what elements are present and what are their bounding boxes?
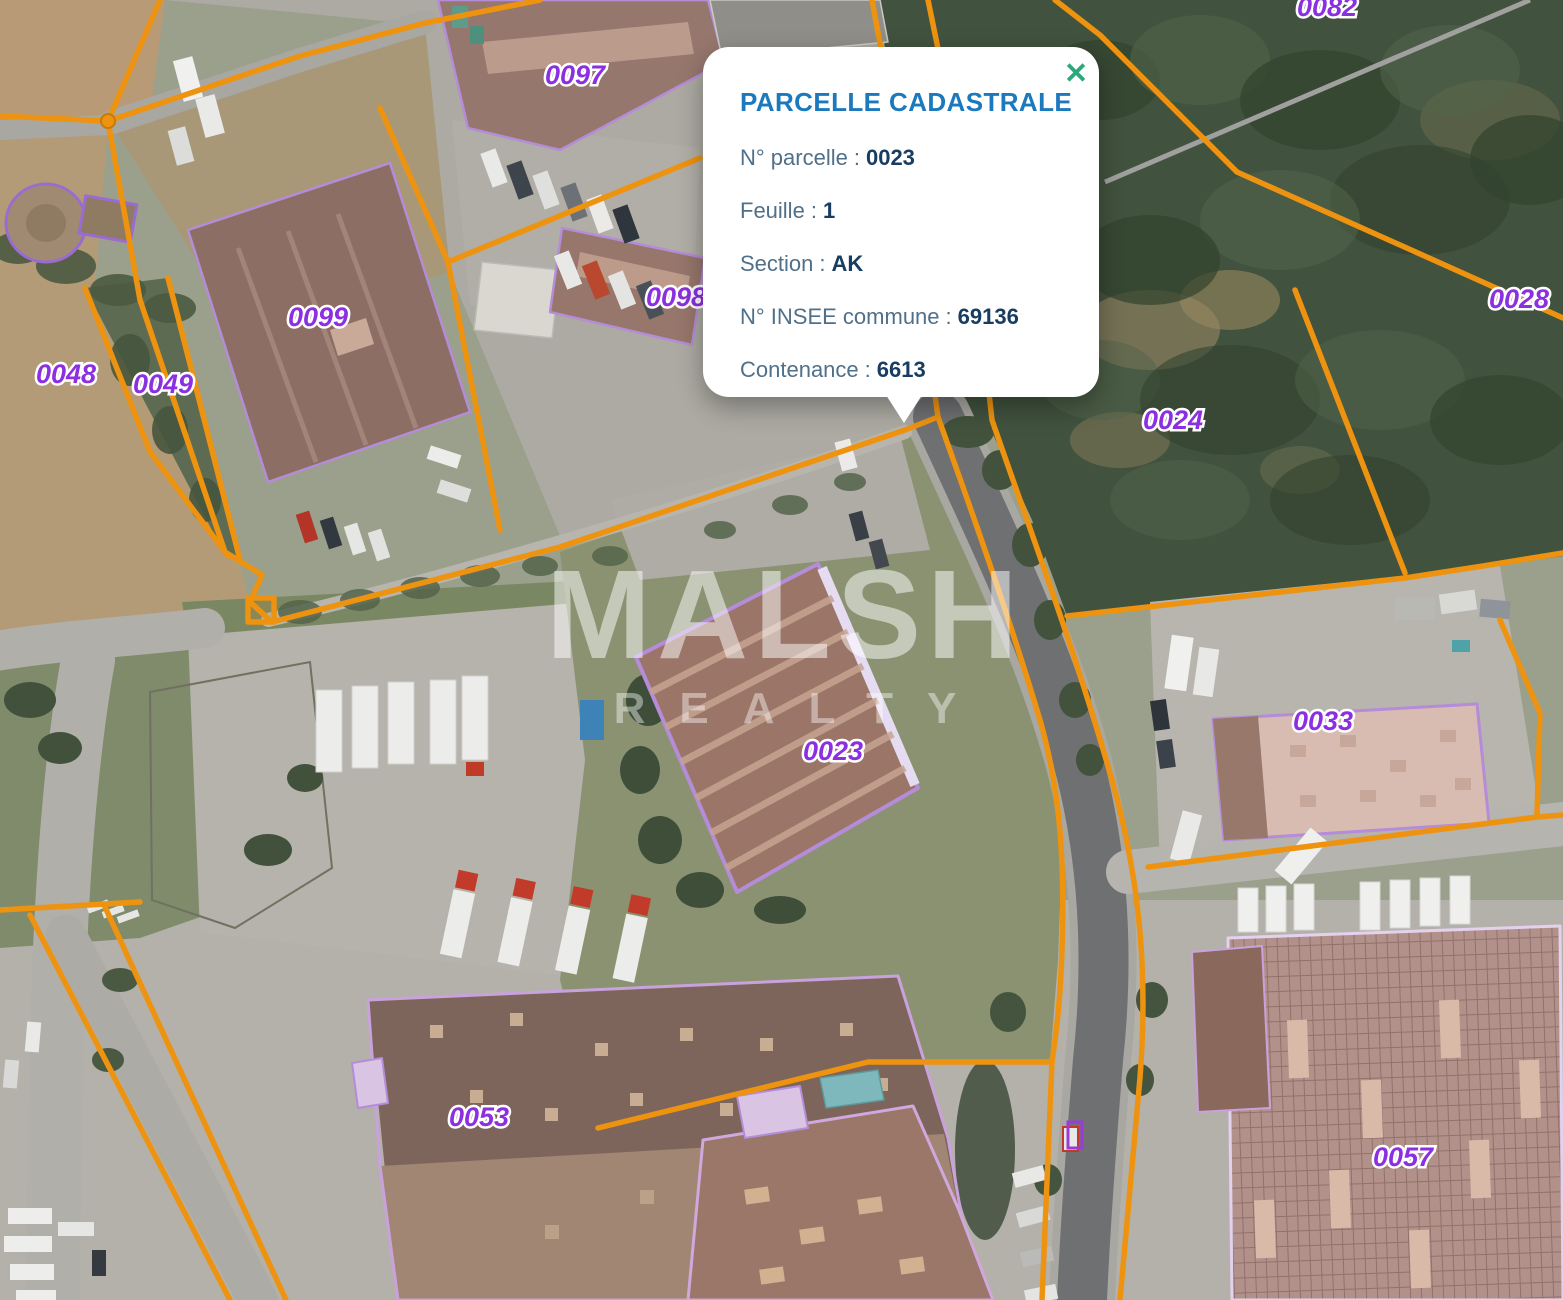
cadastral-map-view: 0082 0097 0098 0099 0048 0049 0028 0024 …: [0, 0, 1563, 1300]
field-separator: :: [854, 145, 860, 170]
parcel-label-0053[interactable]: 0053: [449, 1102, 509, 1132]
field-separator: :: [811, 198, 817, 223]
parcel-label-0097[interactable]: 0097: [545, 60, 607, 90]
parcel-label-0082[interactable]: 0082: [1297, 0, 1357, 22]
field-label: N° parcelle: [740, 145, 848, 170]
field-label: Section: [740, 251, 813, 276]
parcel-label-0048[interactable]: 0048: [36, 359, 96, 389]
field-label: Contenance: [740, 357, 859, 382]
parcel-info-popup: ✕ PARCELLE CADASTRALE N° parcelle:0023 F…: [703, 47, 1099, 397]
parcel-label-0024[interactable]: 0024: [1143, 405, 1203, 435]
popup-field-feuille: Feuille:1: [740, 198, 1099, 224]
parcel-label-0098[interactable]: 0098: [646, 282, 706, 312]
boundary-junction-node: [101, 114, 115, 128]
close-icon[interactable]: ✕: [1059, 57, 1093, 91]
field-label: N° INSEE commune: [740, 304, 940, 329]
parcel-label-0028[interactable]: 0028: [1489, 284, 1549, 314]
parcel-label-0057[interactable]: 0057: [1373, 1142, 1435, 1172]
popup-field-section: Section:AK: [740, 251, 1099, 277]
popup-title: PARCELLE CADASTRALE: [740, 87, 1099, 118]
popup-field-insee: N° INSEE commune:69136: [740, 304, 1099, 330]
field-value: 69136: [958, 304, 1019, 329]
field-label: Feuille: [740, 198, 805, 223]
popup-field-contenance: Contenance:6613: [740, 357, 1099, 383]
parcel-label-0099[interactable]: 0099: [288, 302, 348, 332]
field-separator: :: [819, 251, 825, 276]
parcel-label-0049[interactable]: 0049: [133, 369, 193, 399]
parcel-label-0033[interactable]: 0033: [1293, 706, 1353, 736]
field-separator: :: [865, 357, 871, 382]
field-separator: :: [946, 304, 952, 329]
field-value: 1: [823, 198, 835, 223]
field-value: 0023: [866, 145, 915, 170]
popup-field-parcelle: N° parcelle:0023: [740, 145, 1099, 171]
field-value: 6613: [877, 357, 926, 382]
field-value: AK: [832, 251, 864, 276]
building-small-white[interactable]: [474, 262, 560, 338]
building-0057[interactable]: [1192, 926, 1563, 1300]
parcel-label-0023[interactable]: 0023: [803, 736, 863, 766]
feature-circular-tank: [6, 184, 137, 262]
